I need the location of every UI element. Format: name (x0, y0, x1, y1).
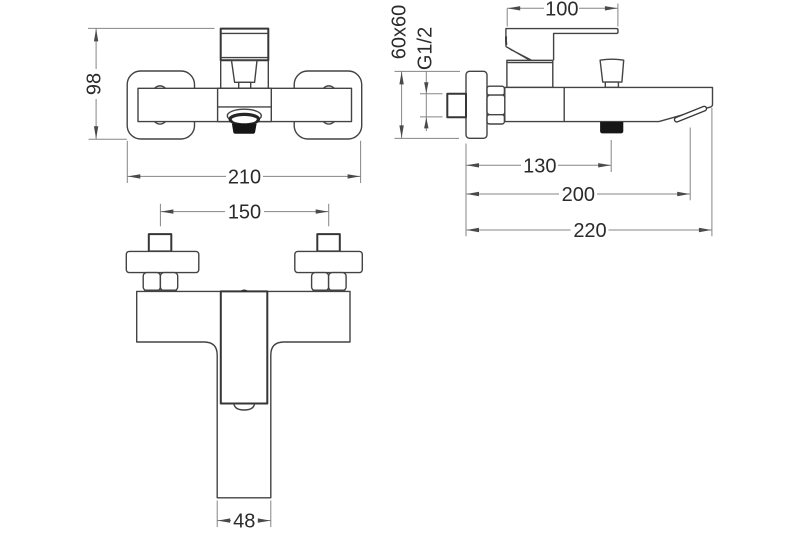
svg-text:210: 210 (228, 166, 261, 188)
svg-text:200: 200 (562, 184, 595, 206)
svg-text:G1/2: G1/2 (415, 27, 437, 70)
svg-text:150: 150 (228, 202, 261, 224)
svg-text:130: 130 (523, 155, 556, 177)
svg-text:220: 220 (573, 220, 606, 242)
svg-text:48: 48 (233, 511, 255, 533)
svg-text:60x60: 60x60 (389, 5, 411, 60)
svg-text:100: 100 (545, 0, 578, 20)
svg-text:98: 98 (84, 73, 106, 95)
